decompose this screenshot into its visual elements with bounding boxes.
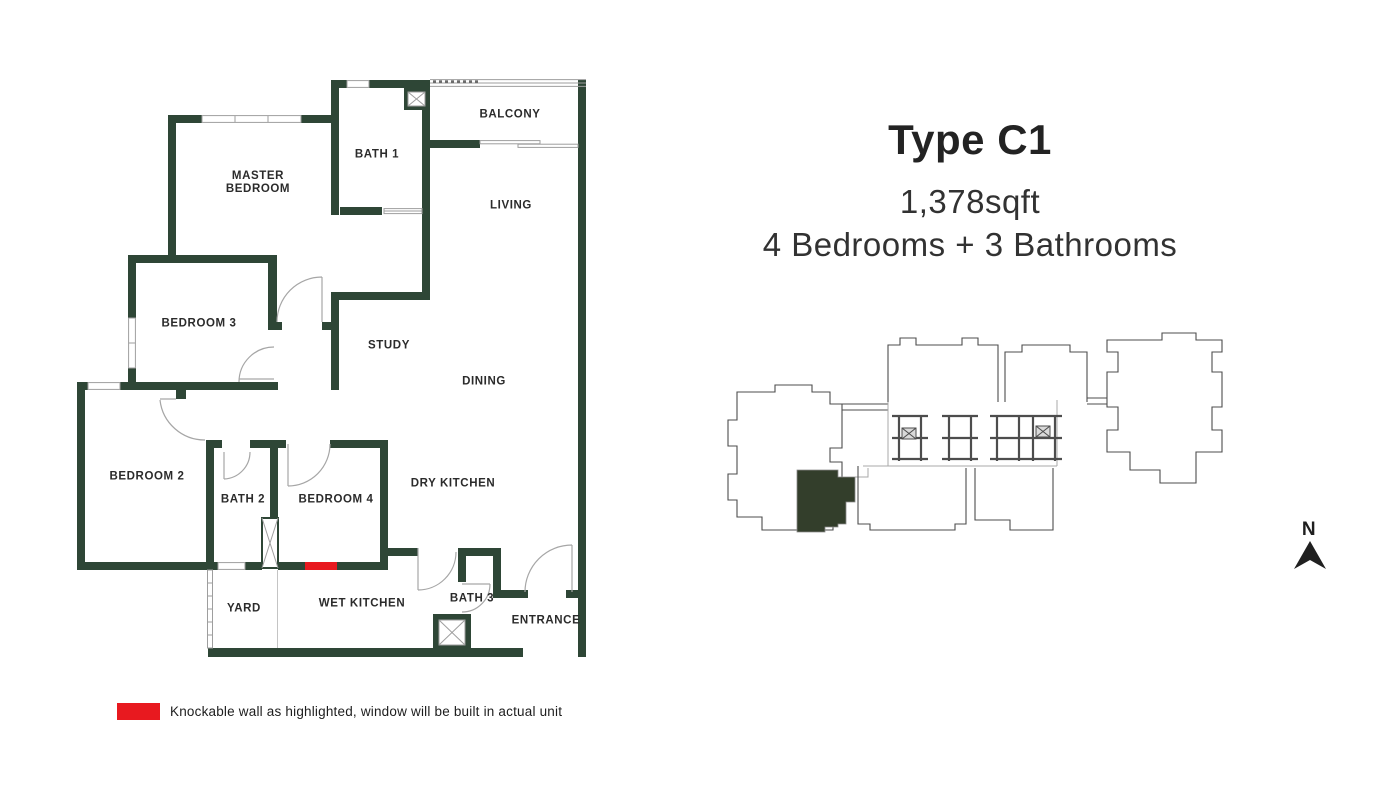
room-label-bedroom-4: BEDROOM 4	[298, 494, 373, 507]
floorplan-sheet: BALCONY BATH 1 MASTER BEDROOM LIVING BED…	[0, 0, 1400, 800]
room-label-dining: DINING	[462, 376, 506, 389]
room-label-bedroom-3: BEDROOM 3	[161, 318, 236, 331]
keyplan-lower-block-left	[858, 466, 966, 530]
room-label-bedroom-2: BEDROOM 2	[109, 471, 184, 484]
unit-type-title: Type C1	[763, 116, 1178, 164]
keyplan-unit-highlight	[797, 470, 855, 532]
keyplan-tower-b	[1005, 345, 1087, 402]
room-label-balcony: BALCONY	[479, 109, 540, 122]
unit-area: 1,378sqft	[763, 180, 1178, 223]
floorplan-graphic	[0, 0, 1400, 800]
floorplan-walls	[77, 80, 586, 657]
room-label-dry-kitchen: DRY KITCHEN	[411, 478, 496, 491]
room-label-study: STUDY	[368, 340, 410, 353]
room-label-master-bedroom: MASTER BEDROOM	[214, 170, 302, 196]
north-arrow-icon	[1294, 541, 1326, 569]
knockable-wall-highlight	[305, 562, 337, 570]
title-block: Type C1 1,378sqft 4 Bedrooms + 3 Bathroo…	[763, 116, 1178, 266]
unit-configuration: 4 Bedrooms + 3 Bathrooms	[763, 223, 1178, 266]
legend: Knockable wall as highlighted, window wi…	[117, 703, 562, 720]
keyplan-core-shafts	[892, 415, 1062, 461]
sliding-door-symbols	[384, 141, 578, 214]
keyplan	[728, 333, 1222, 532]
room-label-living: LIVING	[490, 200, 532, 213]
keyplan-lower-block-right	[975, 468, 1053, 530]
north-label: N	[1302, 519, 1316, 541]
keyplan-right-wing	[1107, 333, 1222, 483]
balcony-railing	[430, 80, 586, 87]
room-label-bath-3: BATH 3	[450, 593, 494, 606]
room-label-yard: YARD	[227, 603, 261, 616]
room-label-bath-1: BATH 1	[355, 149, 399, 162]
room-label-bath-2: BATH 2	[221, 494, 265, 507]
knockable-wall-swatch	[117, 703, 160, 720]
room-label-entrance: ENTRANCE	[512, 615, 581, 628]
keyplan-tower-a	[888, 338, 998, 402]
room-label-wet-kitchen: WET KITCHEN	[319, 598, 405, 611]
legend-note: Knockable wall as highlighted, window wi…	[170, 704, 562, 719]
